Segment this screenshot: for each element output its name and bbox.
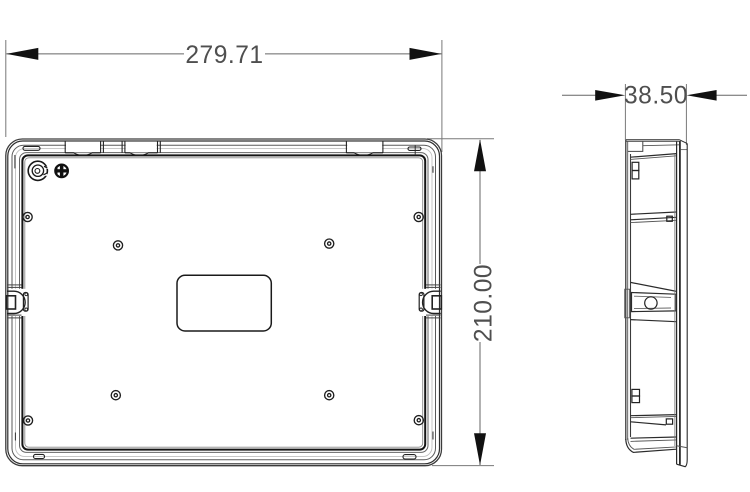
- svg-text:279.71: 279.71: [185, 42, 263, 69]
- svg-text:210.00: 210.00: [470, 264, 497, 342]
- svg-text:38.50: 38.50: [624, 83, 688, 110]
